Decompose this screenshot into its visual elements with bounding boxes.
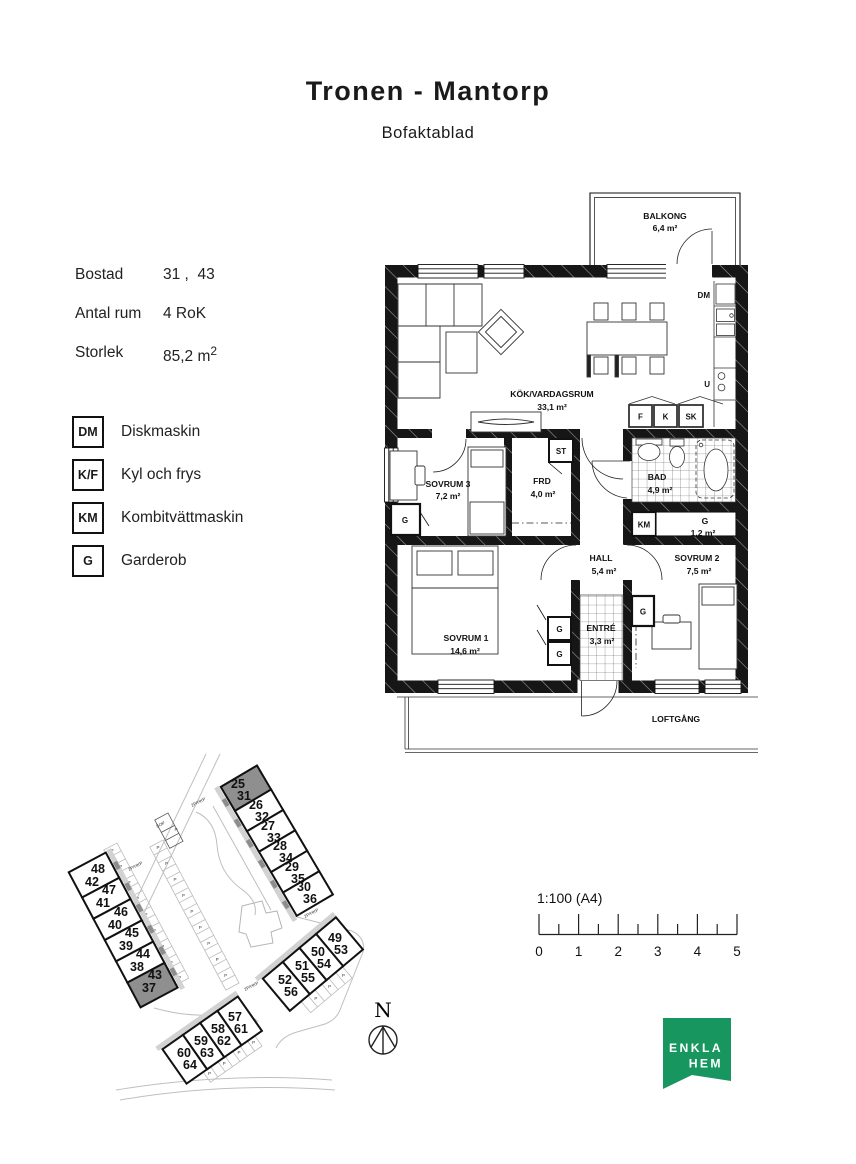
svg-text:P: P xyxy=(165,861,168,866)
svg-text:P: P xyxy=(328,984,331,989)
symbol-legend: DM Diskmaskin K/F Kyl och frys KM Kombit… xyxy=(72,416,243,588)
livingroom-furniture xyxy=(398,284,667,432)
logo-line2: HEM xyxy=(689,1057,723,1071)
svg-text:P: P xyxy=(199,925,202,930)
loftgang-label: LOFTGÅNG xyxy=(652,714,701,724)
svg-text:P: P xyxy=(237,1050,240,1055)
info-label: Storlek xyxy=(75,344,163,366)
info-value: 85,2 m2 xyxy=(163,344,217,366)
svg-text:2P/HKP: 2P/HKP xyxy=(190,796,206,808)
svg-text:42: 42 xyxy=(85,875,99,889)
svg-text:P: P xyxy=(223,1061,226,1066)
legend-row-km: KM Kombitvättmaskin xyxy=(72,502,243,534)
svg-text:40: 40 xyxy=(108,918,122,932)
svg-text:64: 64 xyxy=(183,1058,197,1072)
svg-text:43: 43 xyxy=(148,968,162,982)
svg-text:1: 1 xyxy=(575,944,583,959)
svg-text:P: P xyxy=(157,845,160,850)
f-marker: F xyxy=(638,413,643,422)
svg-text:P: P xyxy=(207,941,210,946)
dm-symbol: DM xyxy=(72,416,104,448)
page-title: Tronen - Mantorp xyxy=(0,76,856,107)
room-label-kok: KÖK/VARDAGSRUM xyxy=(510,389,593,399)
room-label-sovrum1: SOVRUM 1 xyxy=(444,633,489,643)
room-area-bad: 4,9 m² xyxy=(648,485,673,495)
apartment-info: Bostad 31 , 43 Antal rum 4 RoK Storlek 8… xyxy=(75,266,217,387)
svg-text:4: 4 xyxy=(694,944,702,959)
g-marker-entre: G xyxy=(640,608,646,617)
room-area-hall: 5,4 m² xyxy=(592,566,617,576)
svg-text:P: P xyxy=(182,893,185,898)
enkla-hem-logo: ENKLA HEM xyxy=(663,1018,732,1090)
g-marker-sovrum3: G xyxy=(402,516,408,525)
svg-text:61: 61 xyxy=(234,1022,248,1036)
svg-text:2P/HKP: 2P/HKP xyxy=(127,860,143,872)
svg-text:37: 37 xyxy=(142,981,156,995)
svg-text:53: 53 xyxy=(334,943,348,957)
room-label-sovrum2: SOVRUM 2 xyxy=(675,553,720,563)
info-row-bostad: Bostad 31 , 43 xyxy=(75,266,217,284)
svg-text:46: 46 xyxy=(114,905,128,919)
legend-label: Diskmaskin xyxy=(121,423,200,441)
svg-text:2: 2 xyxy=(614,944,622,959)
room-area-kok: 33,1 m² xyxy=(537,402,567,412)
g-symbol: G xyxy=(72,545,104,577)
room-label-frd: FRD xyxy=(533,476,551,486)
legend-row-dm: DM Diskmaskin xyxy=(72,416,243,448)
svg-text:55: 55 xyxy=(301,971,315,985)
room-area-sovrum3: 7,2 m² xyxy=(436,491,461,501)
bofaktablad-page: Tronen - Mantorp Bofaktablad Bostad 31 ,… xyxy=(0,0,856,1164)
svg-text:5: 5 xyxy=(733,944,741,959)
dm-marker: DM xyxy=(698,291,711,300)
room-label-hall: HALL xyxy=(590,553,613,563)
loftgang-walkway xyxy=(397,697,758,753)
info-row-antal-rum: Antal rum 4 RoK xyxy=(75,305,217,323)
svg-text:3: 3 xyxy=(654,944,662,959)
building-row-a: 25 31 26 32 27 33 28 34 29 35 30 36 xyxy=(214,764,334,922)
room-area-garderob: 1,2 m² xyxy=(691,528,716,538)
legend-label: Kyl och frys xyxy=(121,466,201,484)
room-area-sovrum2: 7,5 m² xyxy=(687,566,712,576)
km-symbol: KM xyxy=(72,502,104,534)
legend-row-g: G Garderob xyxy=(72,545,243,577)
floor-plan: BALKONG 6,4 m² KÖK/VARDAGSRUM 33,1 m² SO… xyxy=(378,182,760,762)
info-label: Bostad xyxy=(75,266,163,284)
legend-label: Garderob xyxy=(121,552,186,570)
g-marker-sovrum1-b: G xyxy=(556,650,562,659)
svg-text:44: 44 xyxy=(136,947,150,961)
building-row-b: 48 42 47 41 46 40 45 39 44 38 43 37 xyxy=(68,848,185,1010)
g-marker-sovrum1-a: G xyxy=(556,625,562,634)
svg-text:P: P xyxy=(208,1071,211,1076)
svg-text:SOP: SOP xyxy=(155,820,166,829)
info-row-storlek: Storlek 85,2 m2 xyxy=(75,344,217,366)
kf-symbol: K/F xyxy=(72,459,104,491)
svg-text:P: P xyxy=(314,996,317,1001)
svg-text:P: P xyxy=(174,827,177,832)
svg-text:38: 38 xyxy=(130,960,144,974)
svg-text:P: P xyxy=(342,973,345,978)
svg-text:47: 47 xyxy=(102,883,116,897)
svg-text:56: 56 xyxy=(284,985,298,999)
st-marker: ST xyxy=(556,447,566,456)
scale-label: 1:100 (A4) xyxy=(537,890,602,906)
info-value: 4 RoK xyxy=(163,305,206,323)
room-label-garderob: G xyxy=(702,516,709,526)
site-plan: P P P P P P P P P P P P P P P P P P P P … xyxy=(48,752,393,1102)
svg-text:0: 0 xyxy=(535,944,543,959)
svg-text:P: P xyxy=(190,909,193,914)
info-value: 31 , 43 xyxy=(163,266,215,284)
north-label: N xyxy=(374,998,392,1022)
north-arrow: N xyxy=(355,990,415,1060)
room-label-balkong: BALKONG xyxy=(643,211,687,221)
svg-text:62: 62 xyxy=(217,1034,231,1048)
k-marker: K xyxy=(663,413,669,422)
svg-text:39: 39 xyxy=(119,939,133,953)
room-label-sovrum3: SOVRUM 3 xyxy=(426,479,471,489)
svg-text:45: 45 xyxy=(125,926,139,940)
km-marker: KM xyxy=(638,521,651,530)
svg-text:P: P xyxy=(224,973,227,978)
svg-text:36: 36 xyxy=(303,892,317,906)
logo-line1: ENKLA xyxy=(669,1041,723,1055)
svg-text:54: 54 xyxy=(317,957,331,971)
legend-label: Kombitvättmaskin xyxy=(121,509,243,527)
room-label-entre: ENTRÉ xyxy=(586,623,615,633)
room-label-bad: BAD xyxy=(648,472,667,482)
svg-text:P: P xyxy=(173,877,176,882)
sk-marker: SK xyxy=(685,413,696,422)
svg-text:41: 41 xyxy=(96,896,110,910)
room-area-balkong: 6,4 m² xyxy=(653,223,678,233)
room-area-frd: 4,0 m² xyxy=(531,489,556,499)
u-marker: U xyxy=(704,380,710,389)
room-area-entre: 3,3 m² xyxy=(590,636,615,646)
superscript: 2 xyxy=(210,344,217,358)
scale-bar: 1:100 (A4) 0 1 2 3 4 5 xyxy=(528,882,748,962)
svg-text:P: P xyxy=(216,957,219,962)
svg-text:63: 63 xyxy=(200,1046,214,1060)
svg-text:P: P xyxy=(252,1040,255,1045)
legend-row-kf: K/F Kyl och frys xyxy=(72,459,243,491)
svg-text:48: 48 xyxy=(91,862,105,876)
room-area-sovrum1: 14,6 m² xyxy=(450,646,480,656)
info-label: Antal rum xyxy=(75,305,163,323)
svg-text:2P/HKP: 2P/HKP xyxy=(243,980,259,992)
building-row-c: 49 53 50 54 51 55 52 56 xyxy=(255,912,364,1014)
page-subtitle: Bofaktablad xyxy=(0,124,856,143)
